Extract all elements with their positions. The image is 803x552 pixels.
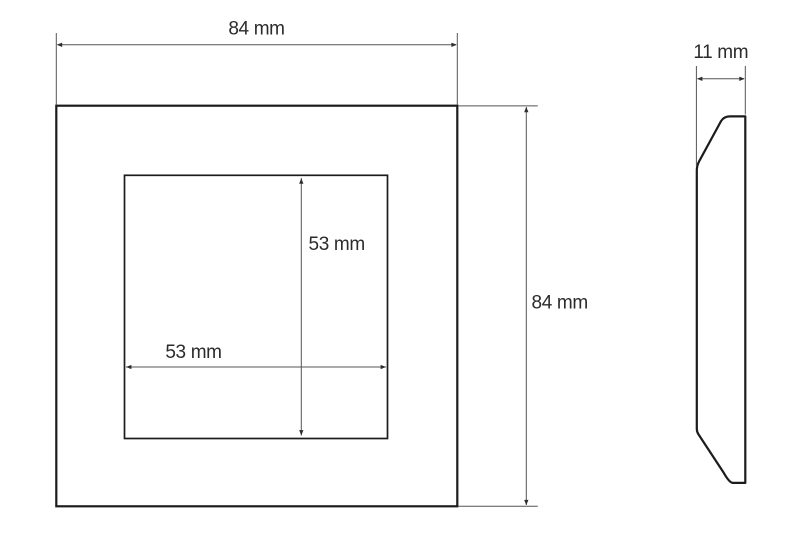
svg-text:53 mm: 53 mm <box>309 234 365 255</box>
svg-text:84 mm: 84 mm <box>228 19 284 40</box>
svg-text:84 mm: 84 mm <box>532 293 588 314</box>
svg-text:11 mm: 11 mm <box>693 42 748 63</box>
svg-text:53 mm: 53 mm <box>165 342 221 363</box>
